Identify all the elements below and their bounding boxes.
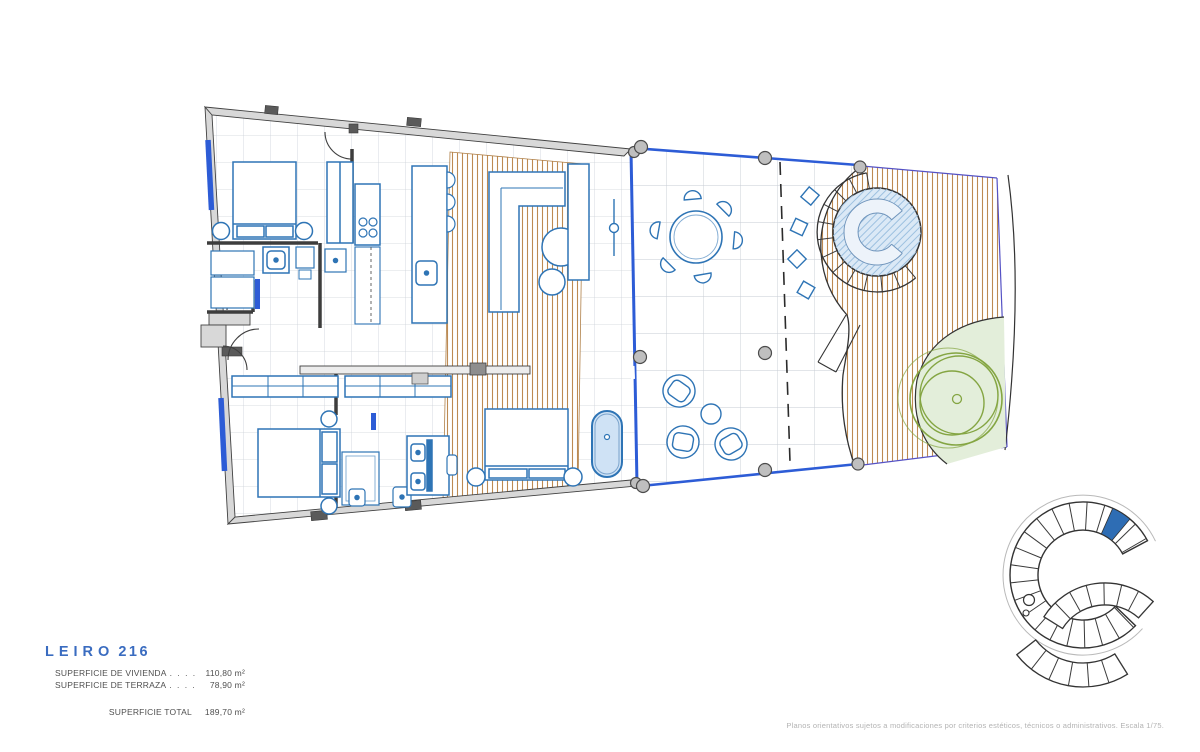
unit-number: 216 [118,644,150,660]
terraza-leader: . . . . . . . . . [169,680,200,692]
floor-plan-page: LEIRO216 SUPERFICIE DE VIVIENDA . . . . … [0,0,1200,752]
location-key [1003,495,1155,687]
total-value: 189,70 m² [205,707,245,717]
project-name: LEIRO [45,644,114,660]
kitchen-counter [355,184,380,324]
terraza-value: 78,90 m² [203,680,245,692]
vivienda-leader: . . . . . . . . . [170,668,200,680]
lounge-side-table [701,404,721,424]
plan-disclaimer: Planos orientativos sujetos a modificaci… [786,721,1164,730]
site-boundary-curve [1005,175,1015,450]
total-label: SUPERFICIE TOTAL [109,707,192,717]
area-summary: SUPERFICIE DE VIVIENDA . . . . . . . . .… [55,668,245,717]
vivienda-value: 110,80 m² [203,668,245,680]
project-title: LEIRO216 [45,644,150,660]
master-bed [467,409,582,486]
summary-row-total: SUPERFICIE TOTAL 189,70 m² [55,707,245,717]
summary-row-vivienda: SUPERFICIE DE VIVIENDA . . . . . . . . .… [55,668,245,680]
tv-unit [568,164,589,280]
bathtub [592,411,622,477]
terraza-label: SUPERFICIE DE TERRAZA [55,680,166,692]
bedroom1-wardrobe [327,162,353,243]
summary-row-terraza: SUPERFICIE DE TERRAZA . . . . . . . . . … [55,680,245,692]
vivienda-label: SUPERFICIE DE VIVIENDA [55,668,167,680]
floor-plan-drawing [0,0,1200,752]
